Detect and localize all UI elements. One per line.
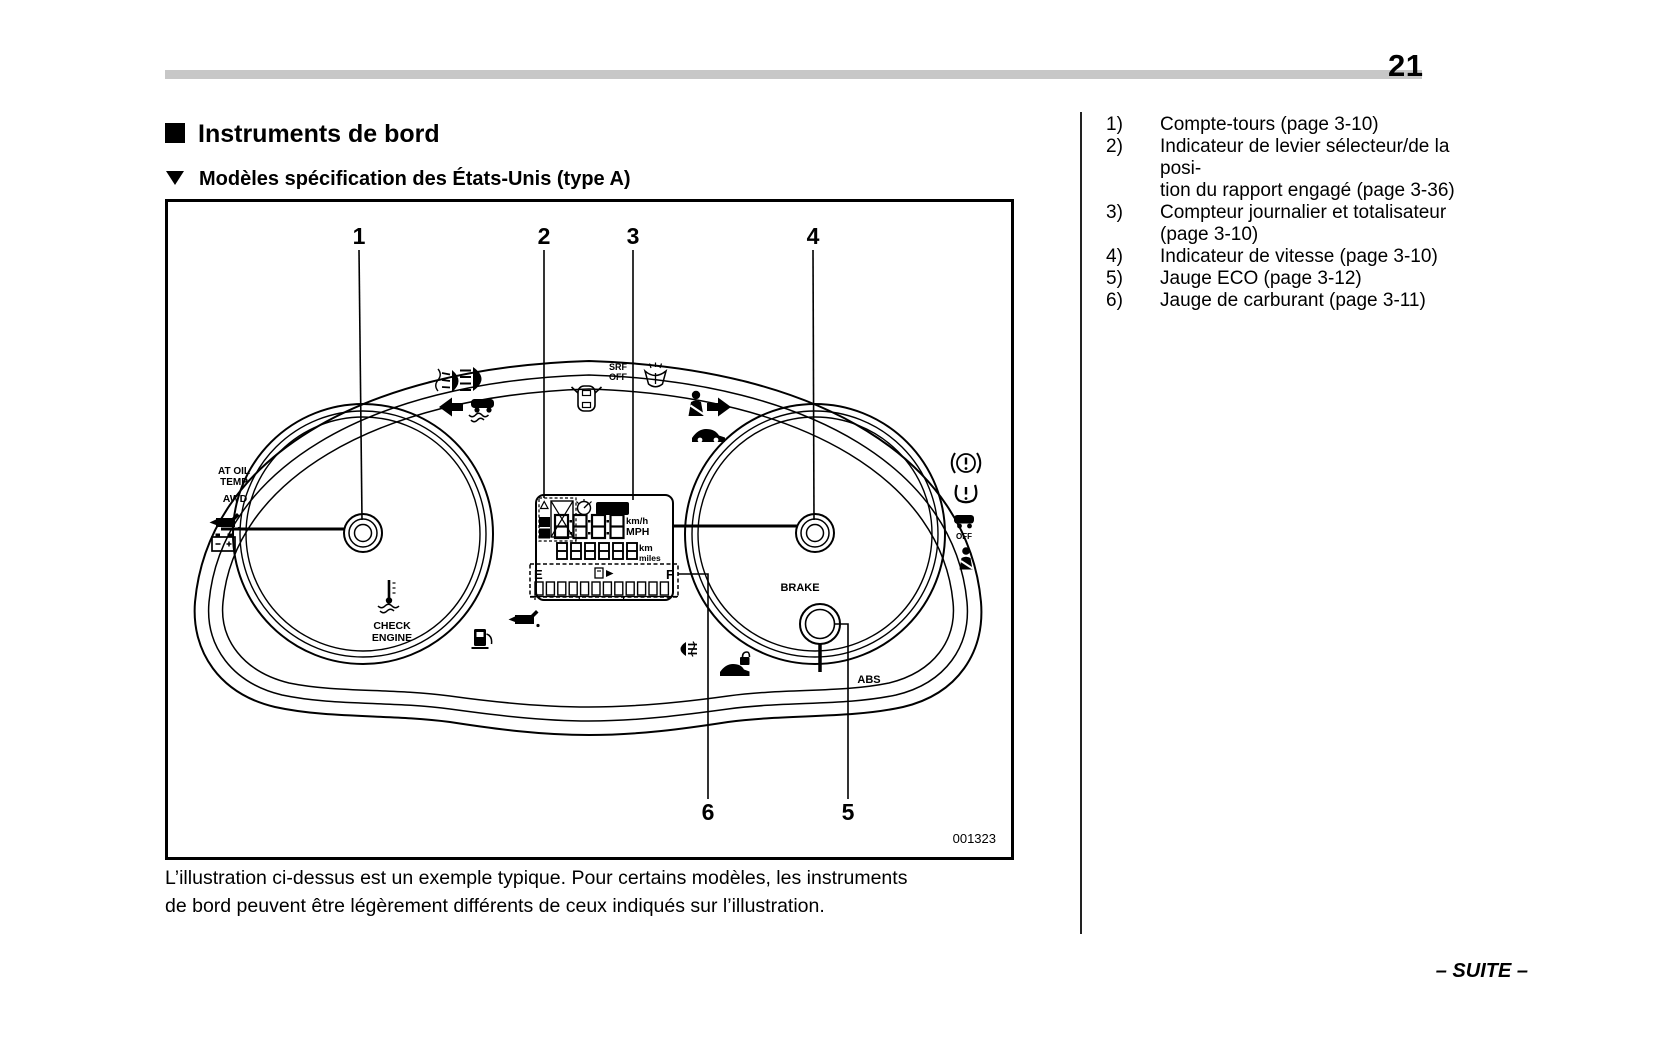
speed-digit-segments	[555, 515, 624, 538]
list-item: 6) Jauge de carburant (page 3-11)	[1106, 290, 1476, 312]
set-indicator: SET	[596, 502, 629, 516]
svg-text:SET: SET	[603, 505, 622, 516]
tachometer-gauge	[221, 404, 493, 664]
svg-text:6: 6	[702, 799, 715, 825]
instrument-cluster-drawing: 1 2 3 4 5 6	[168, 202, 1011, 857]
column-divider	[1080, 112, 1082, 934]
at-oil-temp-label-line1: AT OIL	[218, 466, 250, 477]
svg-text:5: 5	[842, 799, 855, 825]
list-item: 4) Indicateur de vitesse (page 3-10)	[1106, 246, 1476, 268]
left-turn-signal-icon	[439, 398, 463, 417]
battery-charge-icon	[212, 534, 235, 552]
mph-unit-label: MPH	[626, 526, 649, 538]
svg-text:1: 1	[353, 223, 366, 249]
oil-level-icon	[509, 610, 540, 627]
list-item-number: 6)	[1106, 290, 1160, 312]
list-item: 2) Indicateur de levier sélecteur/de la …	[1106, 136, 1476, 202]
subsection-title: Modèles spécification des États-Unis (ty…	[199, 168, 631, 190]
caption-line-2: de bord peuvent être légèrement différen…	[165, 892, 1045, 920]
at-oil-temp-label-line2: TEMP	[220, 477, 248, 488]
svg-text:2: 2	[538, 223, 551, 249]
svg-text:4: 4	[807, 223, 820, 249]
svg-text:OFF: OFF	[956, 532, 972, 541]
list-item: 5) Jauge ECO (page 3-12)	[1106, 268, 1476, 290]
list-item-number: 4)	[1106, 246, 1160, 268]
car-telltale-icon	[692, 429, 725, 442]
callout-4-speedometer: 4	[807, 223, 820, 520]
awd-label: AWD	[223, 493, 248, 505]
miles-unit-label: miles	[639, 553, 661, 563]
trip-ab-selector: A B	[539, 517, 550, 539]
svg-text:ENGINE: ENGINE	[372, 632, 412, 644]
srf-off-telltale: SRF OFF	[609, 362, 628, 382]
cruise-control-icon	[577, 499, 592, 515]
fuel-pump-mini-icon	[595, 568, 614, 578]
section-heading: Instruments de bord	[165, 120, 440, 149]
figure-caption: L’illustration ci-dessus est un exemple …	[165, 864, 1045, 920]
figure-code: 001323	[953, 831, 996, 846]
svg-text:CHECK: CHECK	[373, 620, 411, 632]
caption-line-1: L’illustration ci-dessus est un exemple …	[165, 864, 1045, 892]
check-engine-label: CHECK ENGINE	[372, 620, 412, 644]
list-item-number: 1)	[1106, 114, 1160, 136]
section-marker-square-icon	[165, 123, 185, 143]
speedometer-gauge	[674, 404, 945, 664]
left-telltale-labels: AT OIL TEMP AWD	[218, 466, 250, 505]
svg-text:3: 3	[627, 223, 640, 249]
low-fuel-icon	[472, 629, 492, 648]
svg-text:A: A	[542, 519, 548, 528]
page-number: 21	[1388, 48, 1423, 84]
callout-3-odometer: 3	[627, 223, 640, 500]
list-item: 1) Compte-tours (page 3-10)	[1106, 114, 1476, 136]
list-item: 3) Compteur journalier et totalisateur(p…	[1106, 202, 1476, 246]
list-item-number: 5)	[1106, 268, 1160, 290]
lcd-display-panel: SET A B km	[536, 495, 673, 600]
triangle-marker-icon	[166, 171, 184, 185]
list-item-number: 3)	[1106, 202, 1160, 246]
reference-list: 1) Compte-tours (page 3-10) 2) Indicateu…	[1106, 114, 1476, 312]
continuation-marker: – SUITE –	[1318, 960, 1528, 983]
tire-pressure-warning-icon	[956, 485, 977, 502]
fuel-gauge: E F	[530, 564, 678, 600]
coolant-temp-icon	[378, 580, 399, 613]
fuel-empty-label: E	[534, 567, 543, 582]
rear-fog-light-icon	[681, 642, 698, 657]
subsection-heading: Modèles spécification des États-Unis (ty…	[166, 168, 631, 191]
fuel-full-label: F	[666, 567, 674, 582]
svg-text:OFF: OFF	[609, 372, 627, 382]
seatbelt-reminder-icon	[689, 391, 705, 416]
section-title: Instruments de bord	[198, 120, 440, 148]
abs-label: ABS	[857, 674, 880, 686]
manual-page: 21 Instruments de bord Modèles spécifica…	[0, 0, 1654, 1040]
shift-up-arrow-icon	[541, 502, 549, 509]
top-rule	[165, 70, 1422, 79]
brake-warning-icon	[952, 453, 981, 473]
security-indicator-icon	[720, 652, 750, 676]
vdc-off-icon: OFF	[954, 515, 974, 541]
svg-text:B: B	[542, 530, 548, 539]
callout-1-tachometer: 1	[353, 223, 366, 520]
fuel-level-bars	[535, 582, 668, 595]
svg-text:SRF: SRF	[609, 362, 628, 372]
brake-label: BRAKE	[780, 582, 819, 594]
callout-2-gear-indicator: 2	[538, 223, 551, 498]
right-turn-signal-icon	[707, 398, 731, 417]
instrument-cluster-figure: 1 2 3 4 5 6	[165, 199, 1014, 860]
odometer-digit-segments	[557, 543, 637, 559]
vdc-skid-car-icon	[469, 399, 494, 422]
list-item-number: 2)	[1106, 136, 1160, 202]
